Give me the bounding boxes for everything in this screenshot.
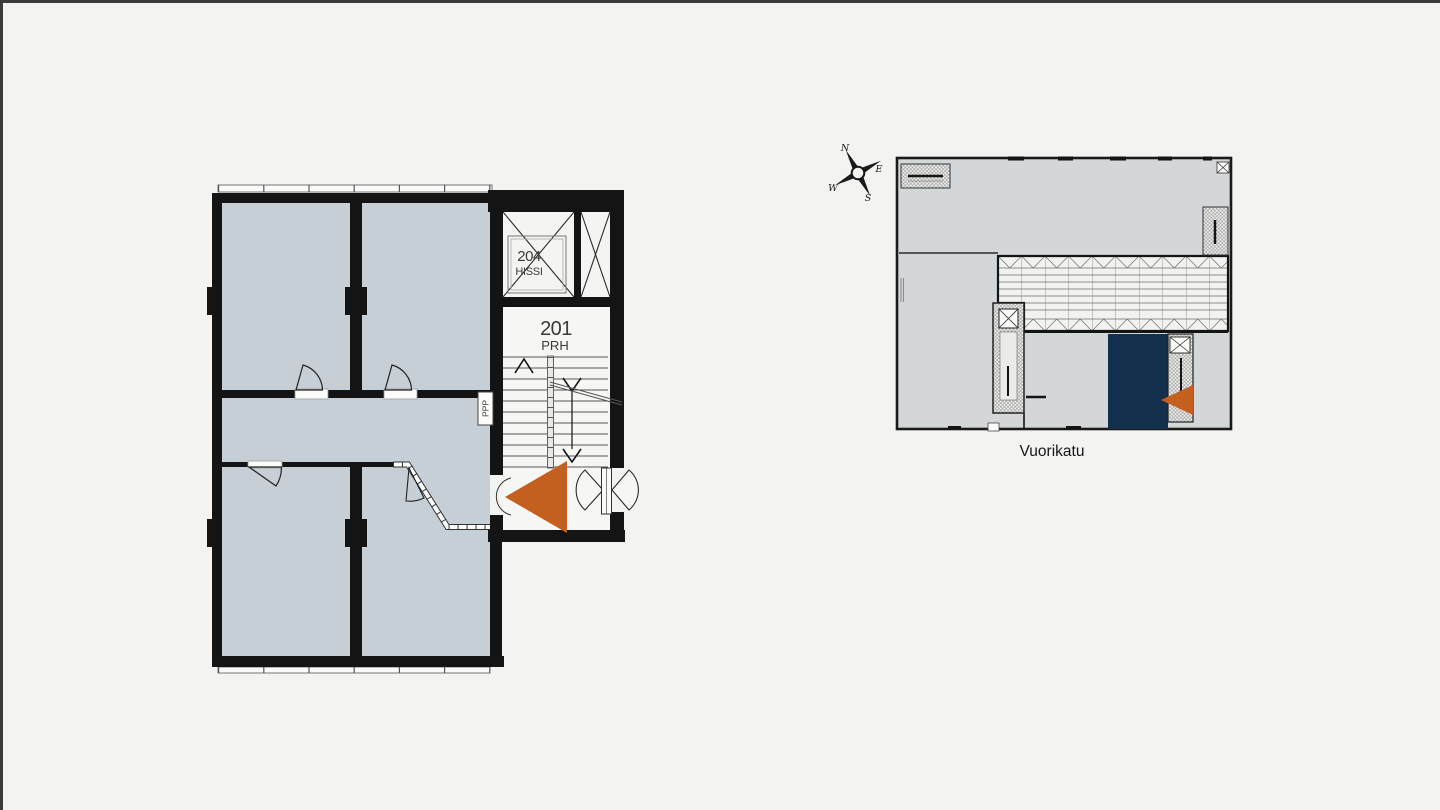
stair-core-east-edge — [1203, 207, 1228, 255]
highlighted-unit — [1108, 334, 1168, 429]
compass-label-s: S — [865, 193, 872, 204]
stair-core-central — [993, 303, 1024, 413]
building-overview-plan[interactable]: Vuorikatu — [897, 157, 1231, 461]
compass-label-w: W — [828, 183, 839, 194]
stairwell-name: PRH — [541, 338, 568, 353]
compass-rose: N E S W — [823, 138, 893, 208]
elevator-number: 204 — [517, 248, 541, 265]
compass-label-e: E — [875, 164, 883, 175]
riser-shaft-ppp: PPP — [478, 392, 493, 425]
compass-label-n: N — [840, 143, 850, 154]
stairwell-number: 201 — [540, 318, 572, 340]
compass-circle — [852, 167, 865, 180]
riser-label: PPP — [481, 400, 491, 417]
floor-plan-scene: 204 HISSI 201 PRH — [0, 0, 1440, 810]
door-fan-outer — [612, 470, 638, 510]
street-label: Vuorikatu — [1020, 443, 1085, 460]
elevator-name: HISSI — [515, 266, 542, 278]
detail-floor-plan[interactable]: 204 HISSI 201 PRH — [207, 185, 638, 673]
shaft-box-northeast — [1217, 162, 1229, 173]
elevator-shaft-204: 204 HISSI — [503, 212, 574, 297]
attic-hatched-area — [998, 256, 1228, 331]
stair-core-northwest — [901, 164, 950, 188]
elevator-shaft-small — [581, 212, 610, 297]
stair-stringer — [548, 356, 554, 468]
